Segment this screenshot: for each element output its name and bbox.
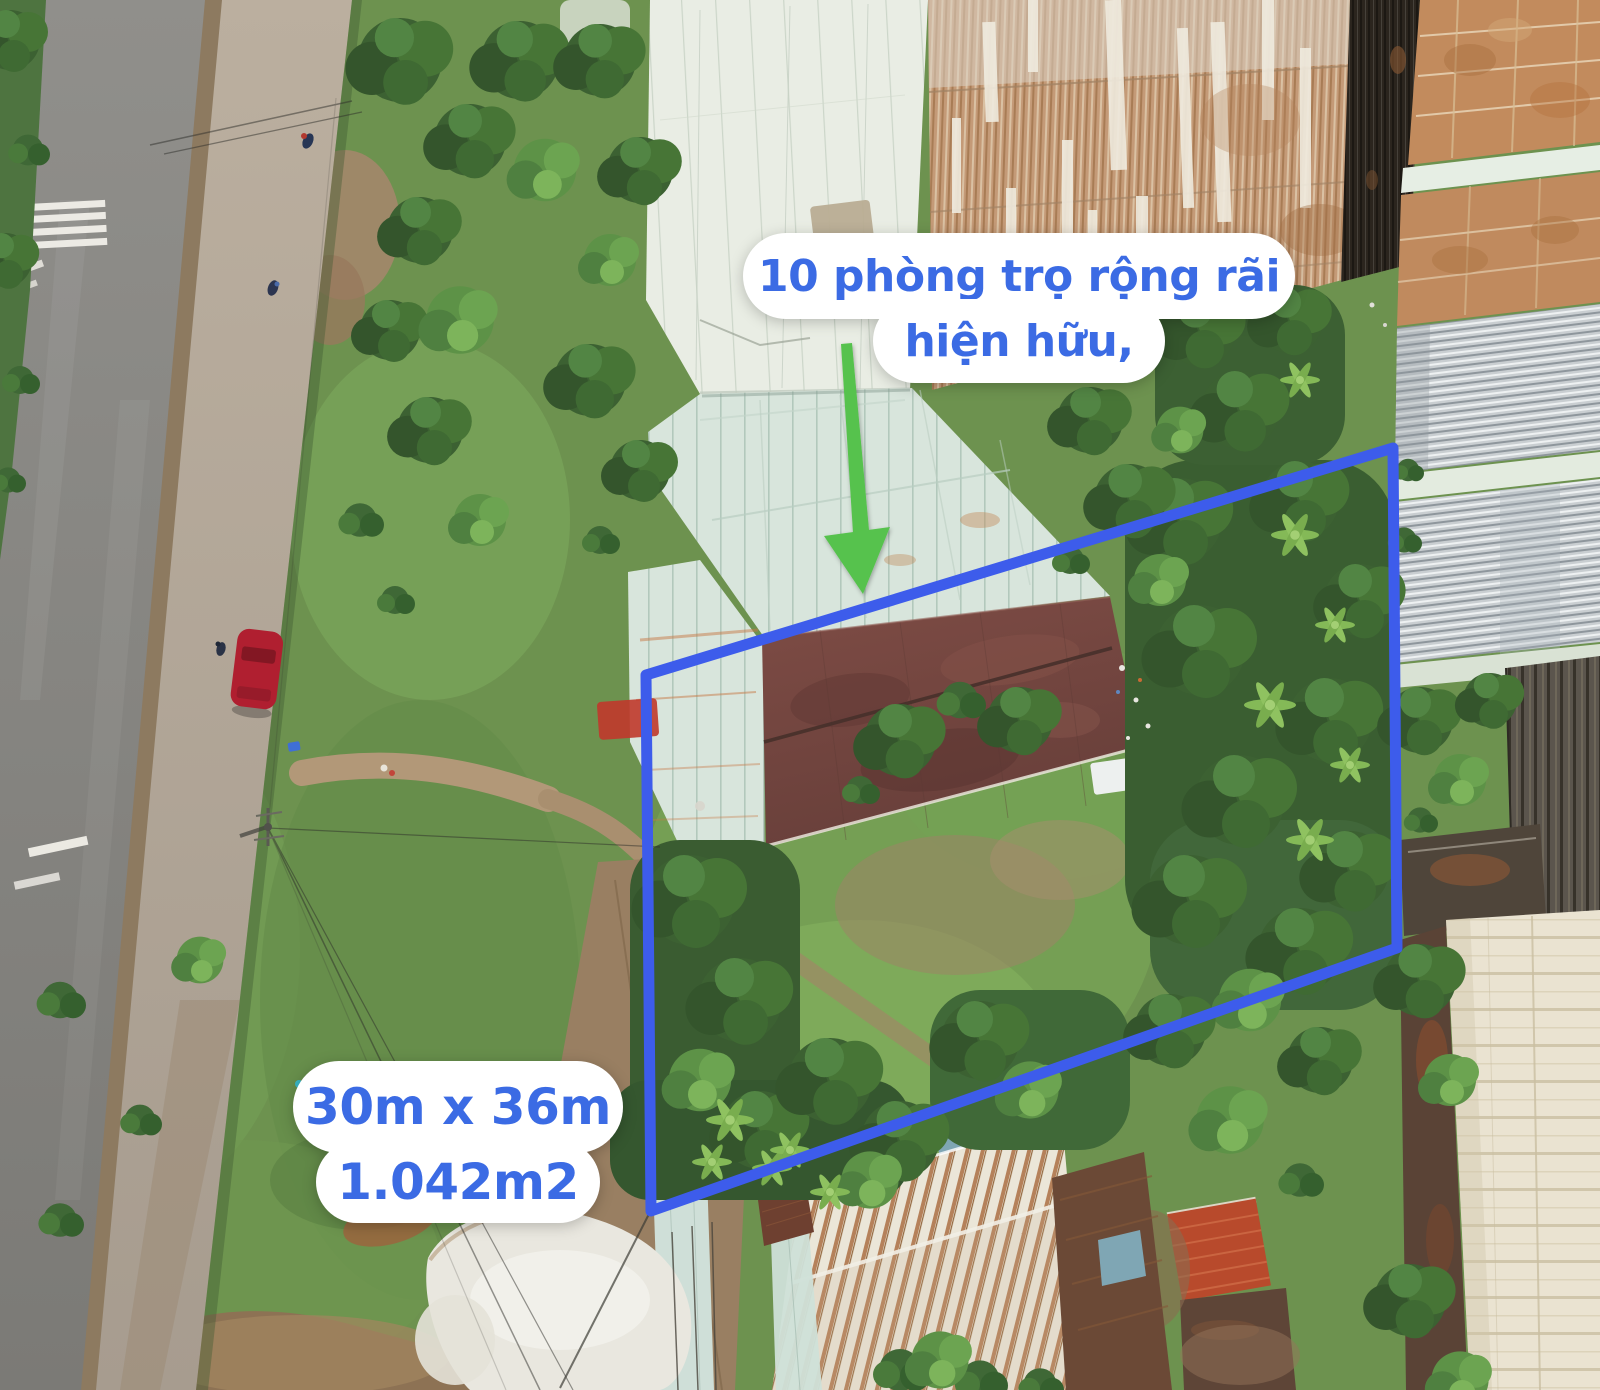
callout-dimensions-line1: 30m x 36m <box>305 1078 611 1136</box>
aerial-photo: 10 phòng trọ rộng rãi hiện hữu, 30m x 36… <box>0 0 1600 1390</box>
callout-dimensions-line2-bubble: 1.042m2 <box>316 1141 600 1223</box>
callout-rooms-line1: 10 phòng trọ rộng rãi <box>758 251 1280 302</box>
photo-scene <box>0 0 1600 1390</box>
callout-rooms-line2-bubble: hiện hữu, <box>873 299 1165 383</box>
callout-dimensions-line2: 1.042m2 <box>337 1153 579 1211</box>
callout-rooms-line2: hiện hữu, <box>904 316 1133 367</box>
callout-dimensions-line1-bubble: 30m x 36m <box>293 1061 623 1153</box>
callout-dimensions: 30m x 36m 1.042m2 <box>293 1061 623 1223</box>
callout-rooms: 10 phòng trọ rộng rãi hiện hữu, <box>743 233 1295 383</box>
